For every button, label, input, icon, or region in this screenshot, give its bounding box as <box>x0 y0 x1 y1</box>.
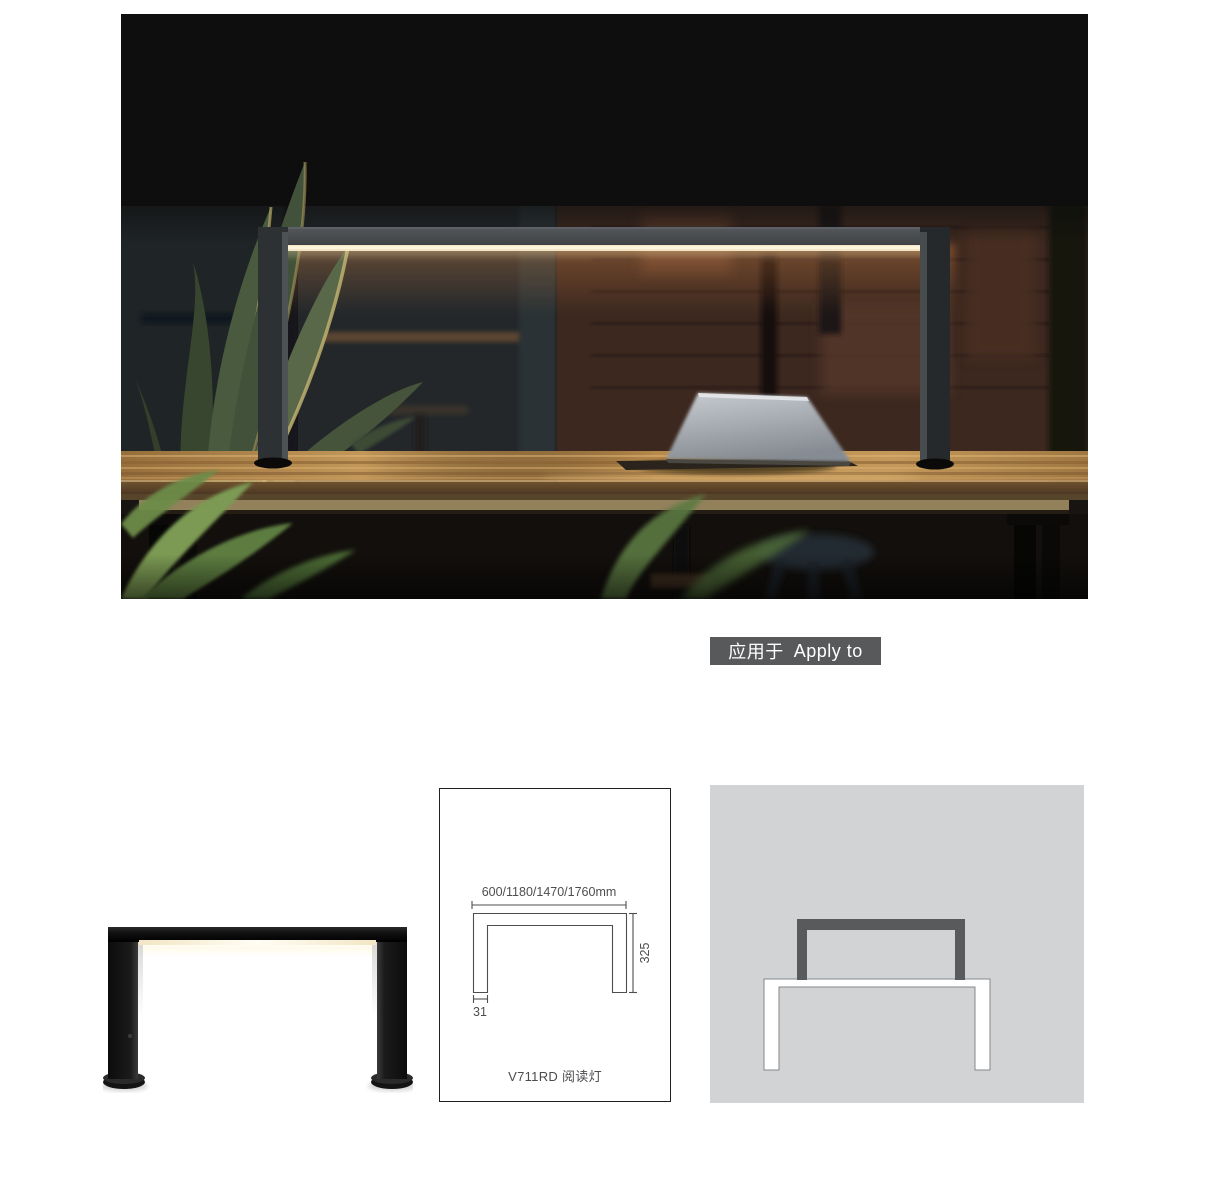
desk-silhouette <box>764 979 990 1070</box>
badge-label-zh: 应用于 <box>728 638 784 664</box>
lamp-right-grommet <box>916 459 954 470</box>
dim-width-label: 600/1180/1470/1760mm <box>482 885 617 899</box>
lamp-silhouette <box>797 919 965 980</box>
lamp-right-post <box>377 942 407 1079</box>
light-strip <box>139 940 376 945</box>
badge-label-en: Apply to <box>794 641 863 662</box>
application-panel <box>710 785 1084 1103</box>
dim-foot-label: 31 <box>473 1005 487 1019</box>
product-render-figure <box>103 927 413 1093</box>
vignette-bottom <box>121 554 1088 599</box>
application-diagram <box>710 785 1084 1103</box>
lamp-top-bar <box>108 927 407 942</box>
catalog-page: 应用于 Apply to <box>0 0 1212 1187</box>
dim-height-label: 325 <box>638 943 652 964</box>
lamp-left-post <box>108 942 138 1079</box>
lamp-left-grommet <box>254 458 292 469</box>
power-button <box>128 1034 132 1038</box>
model-caption: V711RD 阅读灯 <box>440 1066 670 1085</box>
hero-scene <box>121 14 1088 599</box>
hero-photo <box>121 14 1088 599</box>
apply-to-badge: 应用于 Apply to <box>710 637 881 665</box>
product-render <box>103 927 413 1093</box>
dimension-diagram: 600/1180/1470/1760mm 325 31 <box>440 789 669 1100</box>
dimension-spec-box: 600/1180/1470/1760mm 325 31 V711RD 阅读灯 <box>439 788 671 1102</box>
